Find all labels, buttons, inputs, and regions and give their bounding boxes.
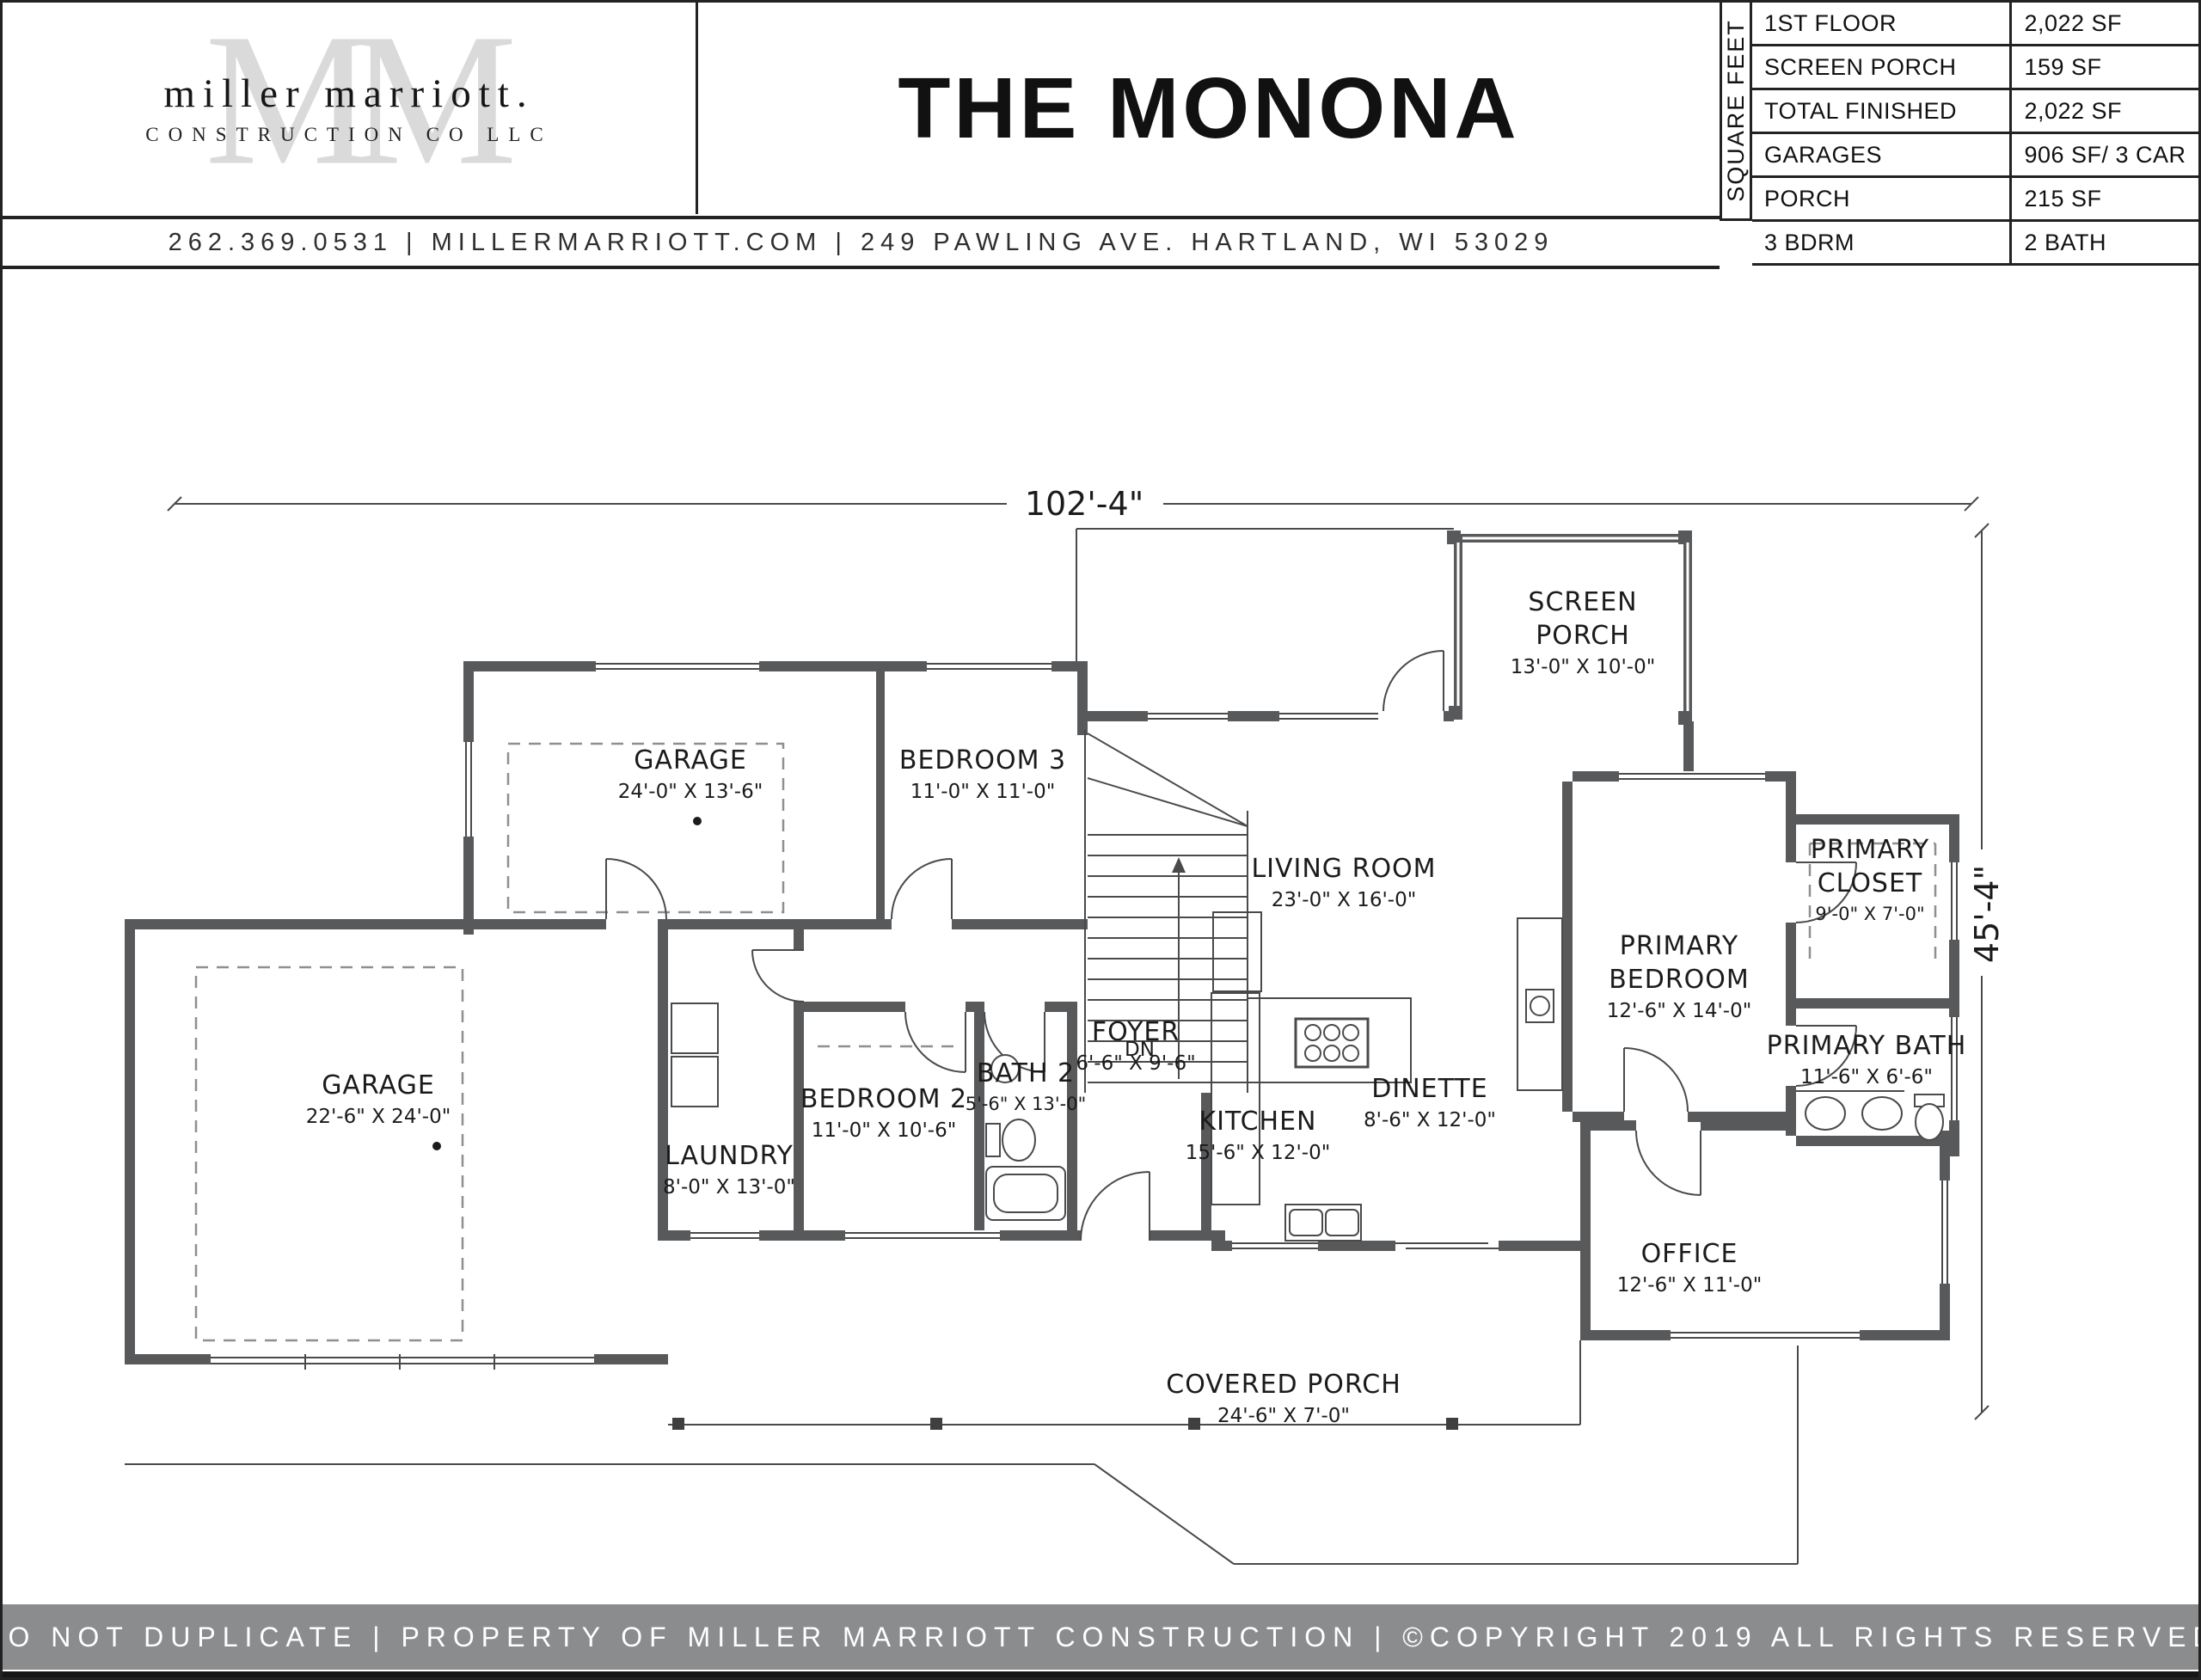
primary-bath-vanity [1796,1091,1904,1130]
room-label-covered-porch: COVERED PORCH 24'-6" X 7'-0" [1166,1368,1401,1427]
room-label-bedroom2: BEDROOM 2 11'-0" X 10'-6" [800,1082,967,1142]
laundry-appliances [671,1003,718,1107]
primary-bath-toilet [1915,1094,1944,1140]
room-label-living-room: LIVING ROOM 23'-0" X 16'-0" [1251,852,1436,911]
kitchen-island [1248,998,1411,1082]
stairs-dn-label: DN [1125,1039,1155,1061]
room-label-bath2: BATH 2 5'-6" X 13'-0" [966,1057,1087,1114]
kitchen-sink [1285,1205,1361,1241]
room-label-primary-bath: PRIMARY BATH 11'-6" X 6'-6" [1767,1029,1967,1088]
garage-floor-drain [693,817,702,825]
room-label-primary-bedroom: PRIMARY BEDROOM 12'-6" X 14'-0" [1607,929,1752,1022]
room-label-dinette: DINETTE 8'-6" X 12'-0" [1364,1072,1496,1131]
floor-plan-sheet: MM miller marriott. CONSTRUCTION CO LLC … [0,0,2201,1680]
room-label-kitchen: KITCHEN 15'-6" X 12'-0" [1186,1105,1331,1164]
fireplace [1517,918,1562,1090]
room-label-bedroom3: BEDROOM 3 11'-0" X 11'-0" [899,744,1066,803]
room-label-garage-lower: GARAGE 22'-6" X 24'-0" [306,1069,451,1128]
room-label-primary-closet: PRIMARY CLOSET 9'-0" X 7'-0" [1811,833,1929,924]
bath2-tub [986,1167,1065,1220]
bath2-toilet [986,1119,1035,1161]
room-label-screen-porch: SCREEN PORCH 13'-0" X 10'-0" [1511,586,1656,678]
room-label-office: OFFICE 12'-6" X 11'-0" [1617,1237,1763,1297]
garage-floor-drain [432,1142,441,1150]
dimension-depth-label: 45'-4" [1968,865,2006,963]
room-label-garage-upper: GARAGE 24'-0" X 13'-6" [618,744,763,803]
room-label-laundry: LAUNDRY 8'-0" X 13'-0" [663,1139,795,1199]
dimension-width-label: 102'-4" [1025,485,1143,523]
